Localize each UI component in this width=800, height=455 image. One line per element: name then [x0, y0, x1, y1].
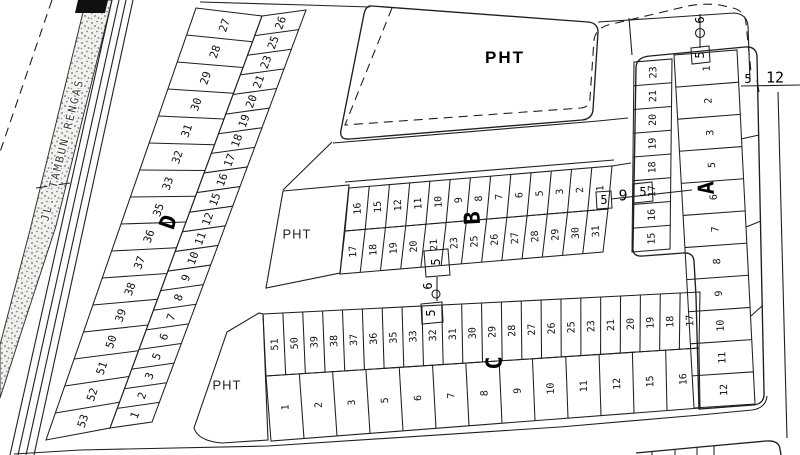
lot-number: 5	[707, 162, 718, 168]
lot-divider	[666, 350, 667, 410]
lot-number: 21	[429, 239, 441, 252]
lot-number: 3	[705, 130, 716, 136]
pht-area-bottom: PHT	[194, 313, 268, 443]
lot-number: 30	[570, 227, 582, 240]
lot-number: 27	[527, 323, 538, 335]
lot-number: 3	[142, 371, 156, 382]
lot-divider	[168, 265, 211, 271]
lot-divider	[487, 176, 491, 219]
lot-divider	[433, 365, 436, 428]
lot-number: 37	[349, 334, 360, 346]
lot-divider	[255, 30, 299, 36]
lot-divider	[190, 206, 233, 212]
road-edge-line	[200, 2, 370, 7]
block-label-b: B	[460, 211, 486, 226]
lot-divider	[462, 304, 463, 363]
lot-number: 32	[169, 149, 186, 166]
lot-number: 9	[714, 290, 725, 296]
lot-divider	[248, 49, 292, 55]
lot-divider	[633, 154, 671, 157]
lot-divider	[161, 285, 204, 291]
lot-number: 36	[369, 333, 380, 345]
lot-divider	[660, 294, 661, 351]
marker-number: 9	[618, 186, 627, 204]
lot-divider	[521, 301, 522, 359]
block-strip-a-col_right: 12356789101112	[674, 50, 755, 408]
lot-divider	[65, 377, 129, 387]
lot-divider	[676, 82, 739, 87]
lot-divider	[366, 370, 370, 434]
lot-divider	[542, 214, 547, 257]
lot-number: 18	[229, 132, 246, 149]
lot-number: 28	[507, 325, 518, 337]
lot-divider	[323, 311, 325, 372]
pht-area-top: PHT	[341, 4, 751, 139]
lot-divider	[446, 180, 450, 223]
lot-divider	[507, 174, 511, 217]
lot-divider	[124, 383, 166, 389]
lot-divider	[219, 128, 262, 134]
lot-divider	[461, 221, 466, 264]
lot-divider	[146, 324, 188, 330]
lot-divider	[532, 359, 535, 421]
lot-number: 51	[270, 338, 281, 350]
lot-number: 6	[413, 395, 424, 401]
lot-divider	[299, 374, 304, 439]
lot-divider	[132, 363, 174, 369]
lot-divider	[360, 229, 365, 272]
lot-number: 36	[141, 228, 158, 245]
lot-divider	[333, 372, 337, 436]
lots-layer: 2728293031323335363738395051525326252321…	[46, 8, 755, 441]
lot-number: 25	[265, 34, 282, 51]
lot-divider	[177, 62, 243, 68]
lot-divider	[679, 147, 741, 152]
lot-divider	[74, 351, 138, 359]
lot-number: 31	[448, 328, 459, 340]
lot-number: 31	[591, 225, 603, 238]
lot-number: 21	[606, 319, 617, 331]
lot-divider	[84, 325, 149, 332]
marker-number: 6	[693, 16, 707, 23]
road-jl-tambun-rengas: JL. TAMBUN RENGAS	[0, 0, 133, 455]
lot-divider	[380, 228, 385, 271]
lot-divider	[182, 226, 225, 232]
lot-divider	[741, 135, 759, 139]
lot-number: 9	[513, 388, 524, 394]
road-edge-line	[629, 18, 632, 55]
monument-circle-icon	[432, 290, 440, 298]
lot-divider	[197, 187, 240, 193]
lot-divider	[687, 275, 749, 279]
lot-number: 5	[535, 190, 546, 197]
lot-divider	[303, 312, 306, 373]
road-edge-line	[598, 13, 750, 80]
lot-divider	[139, 344, 181, 350]
road-edge-line	[10, 0, 112, 455]
lot-divider	[583, 211, 588, 254]
lot-number: 15	[645, 375, 656, 387]
lot-number: 23	[648, 66, 659, 78]
lot-number: 9	[454, 197, 465, 204]
lot-divider	[149, 143, 214, 145]
lot-divider	[634, 83, 672, 86]
lot-number: 19	[236, 113, 253, 130]
lot-divider	[634, 107, 672, 110]
lot-number: 20	[408, 240, 420, 253]
lot-number: 26	[272, 14, 289, 31]
road-edge-line	[14, 396, 767, 454]
lot-number: 27	[510, 232, 522, 245]
lot-divider	[211, 147, 254, 153]
lot-divider	[140, 170, 205, 171]
lot-number: 38	[329, 335, 340, 347]
block-label-d: D	[155, 212, 183, 233]
lot-number: 12	[199, 211, 216, 228]
lot-divider	[399, 367, 403, 430]
lot-number: 8	[171, 292, 185, 303]
road-edge-line	[283, 142, 332, 190]
lot-number: 16	[647, 209, 658, 221]
lot-divider	[751, 306, 762, 316]
lot-divider	[240, 69, 284, 75]
lot-divider	[233, 88, 277, 94]
lot-number: 17	[685, 314, 696, 326]
lot-number: 18	[647, 161, 658, 173]
lot-number: 21	[648, 90, 659, 102]
lot-number: 20	[243, 93, 260, 110]
lot-number: 19	[388, 242, 400, 255]
lot-number: 8	[479, 390, 490, 396]
lot-divider	[689, 307, 751, 311]
block-label-c: C	[482, 356, 507, 370]
lot-number: 7	[494, 193, 505, 200]
lot-divider	[401, 226, 406, 269]
lot-number: 26	[546, 322, 557, 334]
lot-divider	[226, 108, 270, 114]
marker-number: 5	[744, 72, 751, 86]
lot-number: 7	[164, 312, 178, 323]
road-edge-line	[345, 160, 614, 182]
marker-number: 5	[424, 309, 438, 316]
lot-number: 26	[489, 233, 501, 246]
lot-number: 16	[352, 202, 364, 215]
lot-number: 35	[388, 331, 399, 343]
lot-number: 51	[94, 360, 111, 377]
pht-label-top: PHT	[485, 48, 525, 67]
lot-divider	[482, 303, 483, 362]
lot-divider	[678, 114, 741, 119]
lot-number: 27	[216, 17, 233, 34]
lot-number: 2	[575, 187, 586, 194]
lot-number: 2	[314, 402, 325, 408]
lot-divider	[632, 352, 634, 413]
lot-number: 7	[710, 226, 721, 232]
lot-divider	[159, 116, 225, 119]
lot-number: 10	[185, 250, 202, 267]
lot-number: 17	[348, 245, 360, 258]
lot-divider	[466, 363, 469, 426]
lot-number: 33	[160, 175, 177, 192]
lot-number: 6	[514, 192, 525, 199]
lot-divider	[633, 178, 671, 181]
lot-number: 10	[716, 320, 727, 332]
pht-label-middle: PHT	[283, 227, 312, 242]
lot-number: 20	[648, 114, 659, 126]
lot-number: 23	[586, 320, 597, 332]
road-edge-line	[612, 163, 631, 166]
lot-divider	[547, 171, 551, 214]
lot-number: 15	[647, 232, 658, 244]
lot-divider	[342, 310, 344, 371]
lot-divider	[168, 89, 234, 93]
marker-number: 5	[600, 193, 607, 207]
lot-number: 9	[179, 273, 193, 284]
lot-number: 33	[408, 330, 419, 342]
lot-number: 39	[309, 336, 320, 348]
lot-divider	[679, 293, 680, 349]
lot-divider	[112, 248, 177, 251]
lot-number: 16	[678, 373, 689, 385]
lot-number: 30	[467, 327, 478, 339]
lot-number: 3	[347, 399, 358, 405]
lot-number: 2	[704, 98, 715, 104]
lot-divider	[563, 212, 568, 255]
lot-number: 7	[446, 392, 457, 398]
pht-area-middle: PHT	[266, 185, 349, 288]
lot-number: 38	[122, 281, 139, 298]
lot-number: 28	[530, 230, 542, 243]
lot-divider	[402, 307, 404, 367]
cadastral-plat-map: JL. TAMBUN RENGAS PHT PHT PHT 2728293031…	[0, 0, 800, 455]
lot-divider	[385, 185, 389, 228]
lot-number: 28	[207, 43, 224, 60]
lot-divider	[175, 245, 218, 251]
lot-divider	[187, 35, 253, 42]
lot-divider	[588, 168, 592, 211]
lot-divider	[55, 402, 119, 413]
lot-number: 6	[157, 331, 171, 342]
pht-area-dashed-boundary	[345, 4, 751, 125]
lot-number: 50	[103, 333, 120, 350]
lot-divider	[692, 372, 753, 376]
lot-divider	[568, 169, 572, 212]
lot-number: 1	[595, 185, 606, 192]
lot-divider	[685, 243, 747, 247]
block-outline	[636, 441, 781, 455]
lot-divider	[130, 196, 195, 197]
lot-divider	[566, 357, 568, 419]
lot-number: 15	[207, 191, 224, 208]
lot-divider	[93, 299, 158, 305]
culvert-bar	[75, 0, 108, 13]
lot-number: 12	[393, 199, 405, 212]
road-edge-line	[598, 118, 628, 121]
lot-divider	[482, 219, 487, 262]
lot-number: 29	[550, 228, 562, 241]
lot-number: 25	[469, 235, 481, 248]
marker-number: 12	[766, 68, 784, 86]
pht-label-bottom: PHT	[213, 378, 242, 393]
lot-number: 15	[373, 201, 385, 214]
lot-number: 2	[135, 390, 149, 401]
road-edge-line	[333, 121, 598, 143]
lot-divider	[746, 221, 761, 227]
lot-number: 53	[75, 413, 92, 430]
lot-divider	[382, 308, 384, 368]
lot-number: 1	[128, 410, 142, 421]
lot-number: 8	[712, 258, 723, 264]
lot-divider	[522, 216, 527, 259]
lot-number: 5	[380, 397, 391, 403]
lot-number: 39	[112, 307, 129, 324]
lot-divider	[406, 183, 410, 226]
lot-number: 29	[197, 70, 214, 87]
lot-number: 5	[150, 351, 164, 362]
lot-number: 12	[719, 384, 730, 396]
lot-divider	[153, 304, 196, 310]
lot-number: 32	[428, 329, 439, 341]
bottom-right-block	[636, 441, 781, 455]
lot-number: 18	[665, 315, 676, 327]
lot-number: 23	[449, 237, 461, 250]
lot-number: 52	[84, 386, 101, 403]
lot-number: 29	[487, 326, 498, 338]
lot-number: 19	[645, 317, 656, 329]
lot-number: 11	[413, 197, 425, 210]
lot-number: 21	[250, 73, 267, 90]
marker-number: 6	[421, 282, 435, 289]
pht-area-outline	[341, 6, 598, 139]
block-strip-c-row_top: 5150393837363533323130292827262523212019…	[263, 292, 700, 376]
lot-number: 12	[612, 378, 623, 390]
lot-number: 11	[192, 230, 209, 247]
lot-number: 30	[188, 96, 205, 113]
lot-number: 50	[289, 337, 300, 349]
lot-divider	[527, 173, 531, 216]
block-strip-a-col_left: 2321201918171615	[632, 59, 672, 252]
lot-divider	[204, 167, 247, 173]
lot-divider	[633, 130, 671, 133]
marker-number: 5	[639, 185, 646, 199]
lot-divider	[426, 181, 430, 224]
lot-divider	[683, 211, 745, 216]
lot-divider	[362, 309, 364, 370]
lot-number: 17	[221, 152, 238, 169]
lot-number: 8	[474, 195, 485, 202]
lot-divider	[632, 225, 670, 228]
lot-number: 31	[179, 122, 196, 139]
lot-number: 11	[579, 380, 590, 392]
block-label-a: A	[694, 181, 720, 196]
lot-number: 11	[717, 352, 728, 364]
lot-number: 16	[214, 171, 231, 188]
lot-number: 23	[258, 54, 275, 71]
lot-divider	[599, 354, 601, 415]
lot-divider	[365, 186, 369, 229]
lot-number: 3	[555, 188, 566, 195]
lot-number: 10	[433, 196, 445, 209]
boundary-dashed-line	[0, 0, 52, 152]
lot-number: 19	[648, 137, 659, 149]
road-edge-line	[778, 92, 787, 438]
lot-number: 1	[280, 404, 291, 410]
lot-number: 10	[546, 382, 557, 394]
lot-divider	[117, 402, 159, 408]
marker-number: 5	[429, 258, 443, 265]
lot-number: 25	[566, 321, 577, 333]
lot-number: 20	[626, 318, 637, 330]
lot-number: 1	[702, 65, 713, 71]
lot-divider	[283, 313, 286, 375]
marker-number: 5	[693, 51, 707, 58]
lot-divider	[501, 302, 502, 361]
lot-number: 18	[368, 244, 380, 257]
lot-number: 37	[131, 254, 148, 271]
lot-divider	[102, 274, 167, 279]
lot-divider	[502, 217, 507, 260]
plat-map-svg: JL. TAMBUN RENGAS PHT PHT PHT 2728293031…	[0, 0, 800, 455]
